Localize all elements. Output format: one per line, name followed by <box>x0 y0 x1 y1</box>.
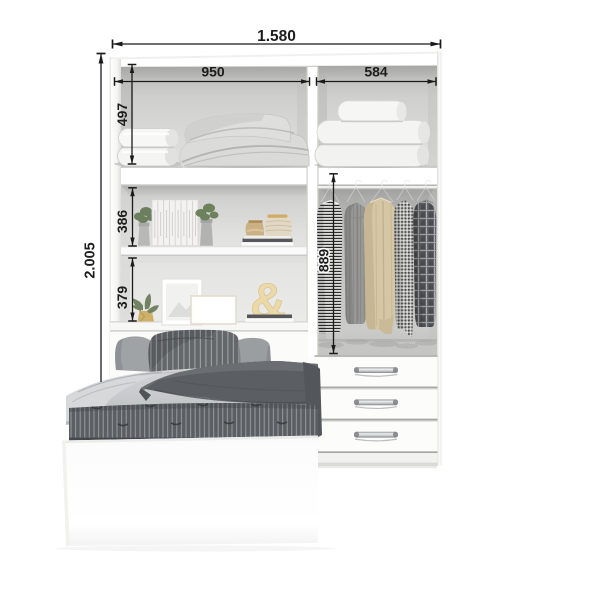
svg-text:2.005: 2.005 <box>83 242 99 278</box>
svg-text:584: 584 <box>364 64 388 80</box>
svg-text:889: 889 <box>316 249 332 273</box>
svg-text:379: 379 <box>114 286 130 310</box>
svg-text:386: 386 <box>114 210 130 234</box>
svg-text:950: 950 <box>201 64 225 80</box>
svg-text:1.580: 1.580 <box>257 28 296 45</box>
svg-text:497: 497 <box>114 103 130 127</box>
